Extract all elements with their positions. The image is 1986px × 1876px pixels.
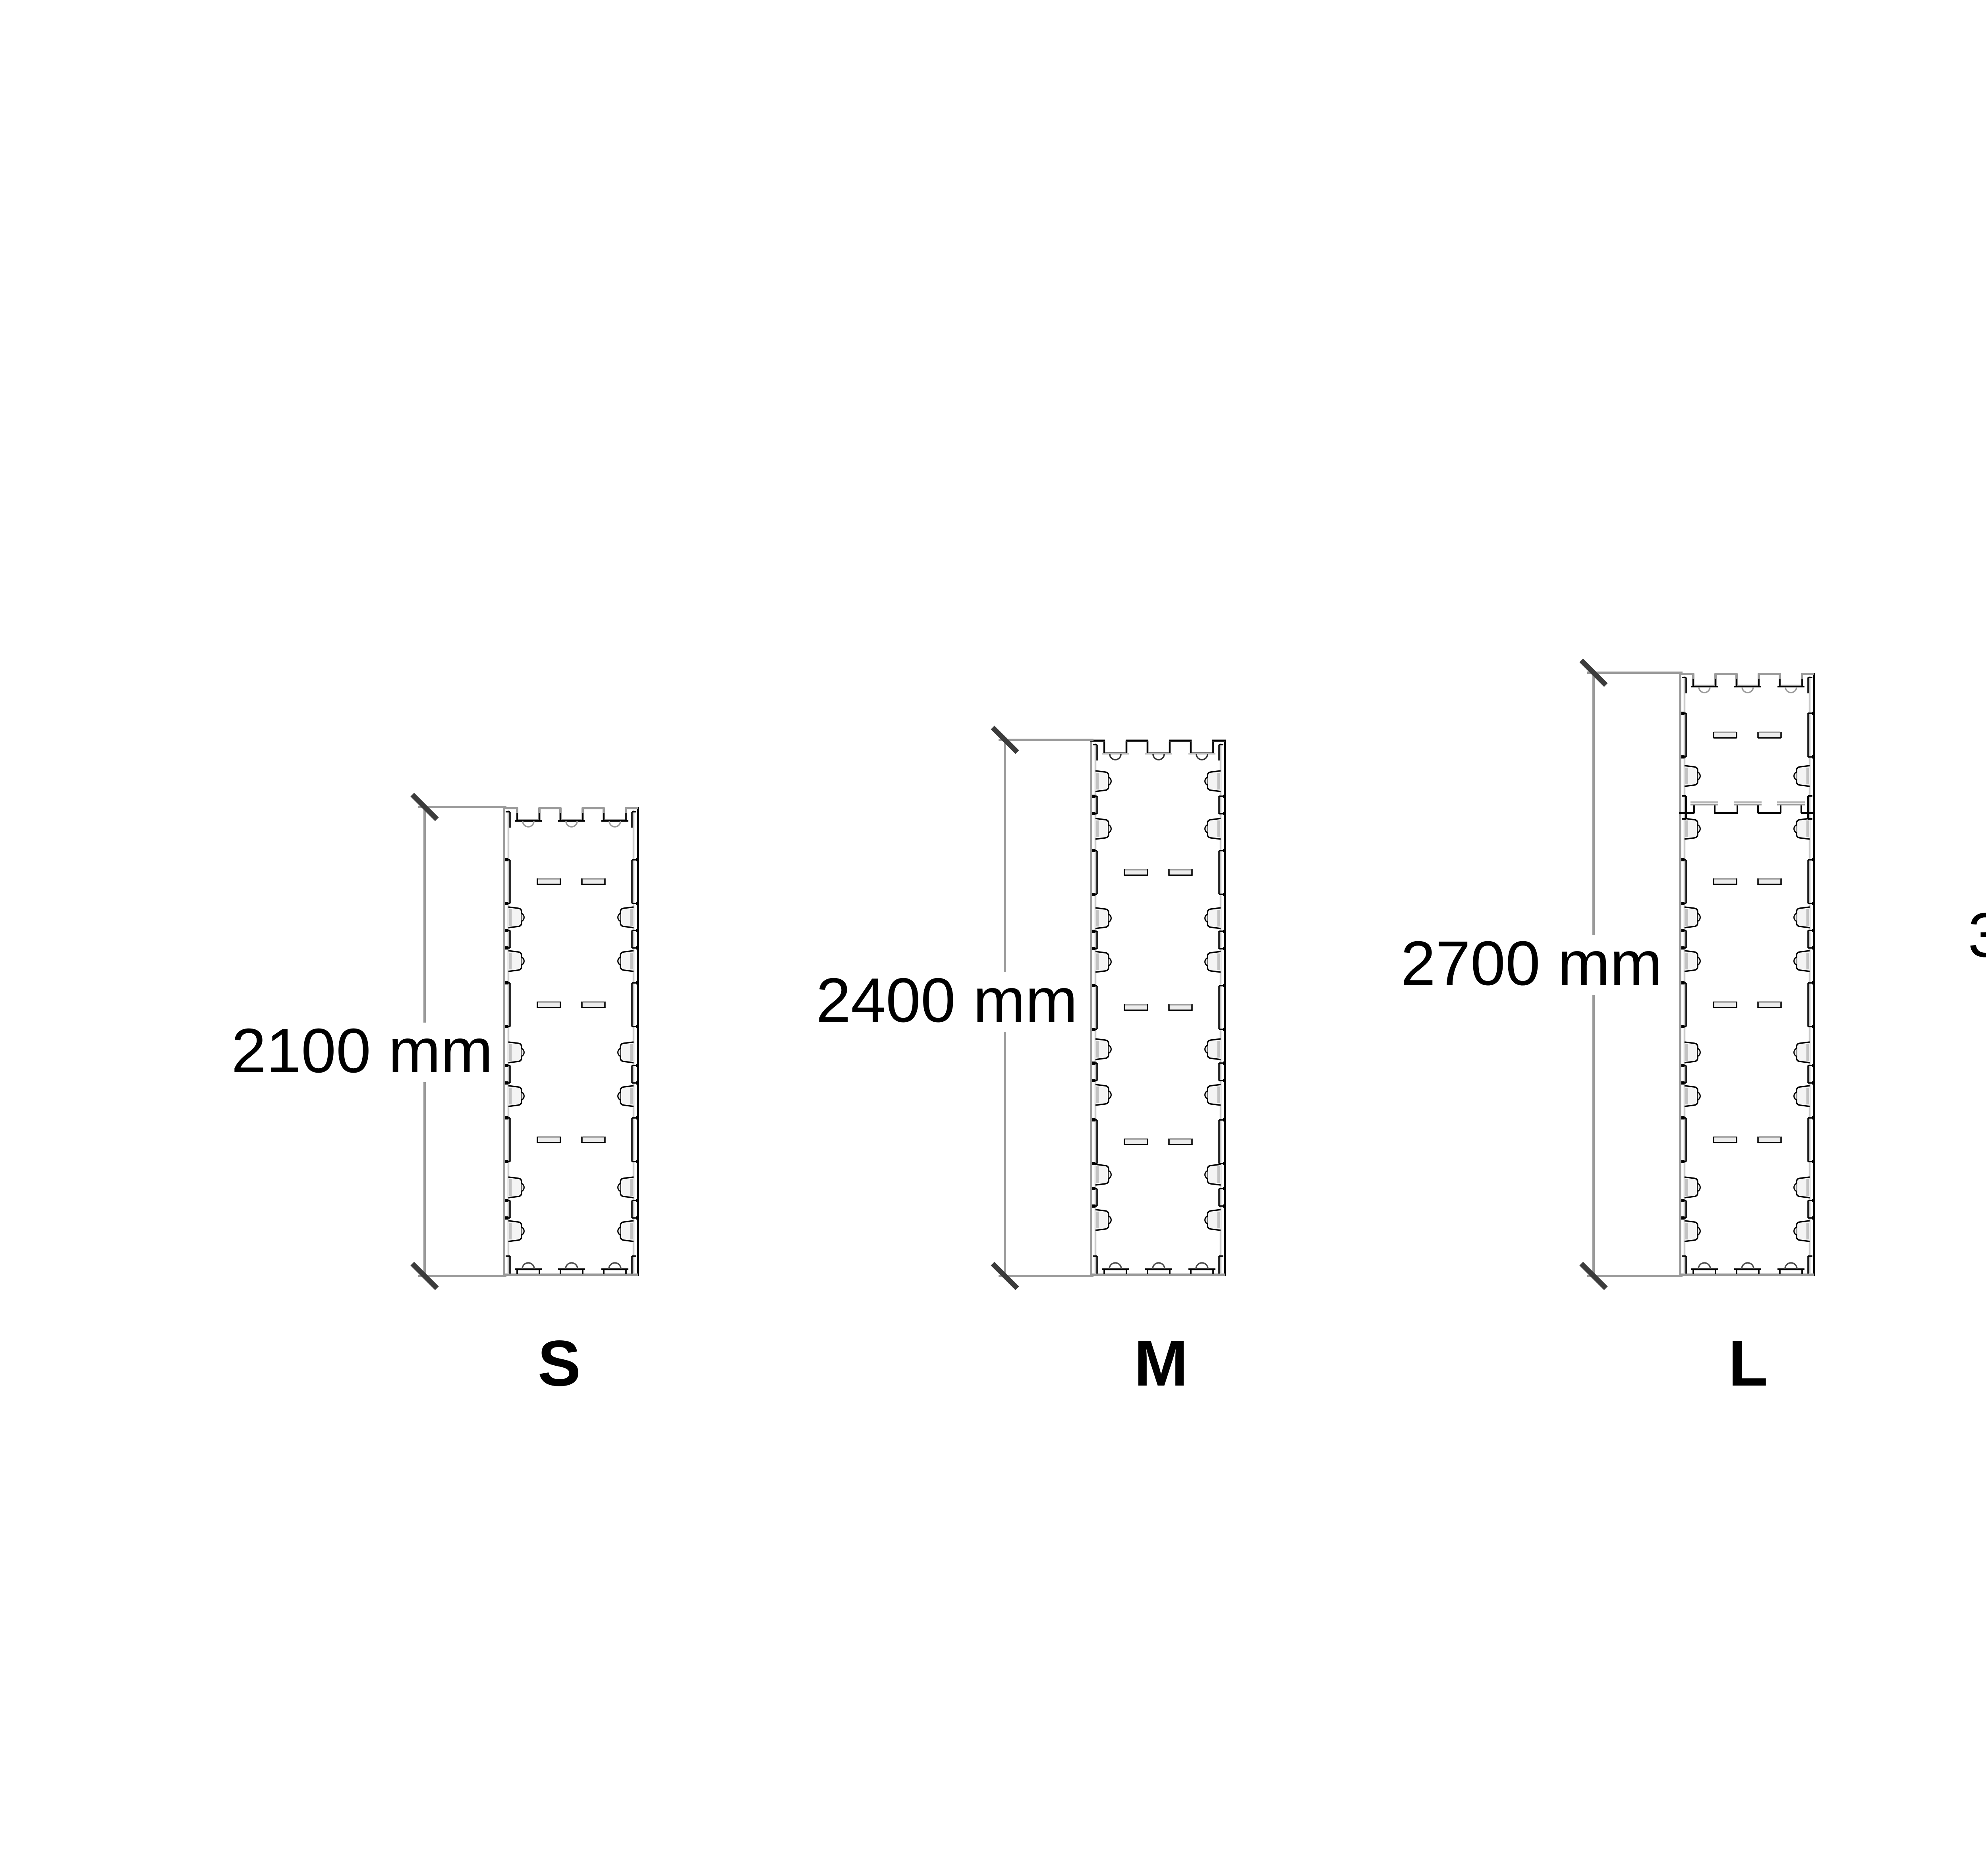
svg-text:L: L	[1728, 1327, 1768, 1399]
svg-text:2400 mm: 2400 mm	[816, 965, 1078, 1035]
svg-text:3000 mm: 3000 mm	[1968, 900, 1986, 970]
svg-text:S: S	[538, 1327, 581, 1399]
svg-text:2100 mm: 2100 mm	[231, 1016, 493, 1086]
svg-text:M: M	[1134, 1327, 1188, 1399]
svg-text:2700 mm: 2700 mm	[1401, 928, 1662, 998]
